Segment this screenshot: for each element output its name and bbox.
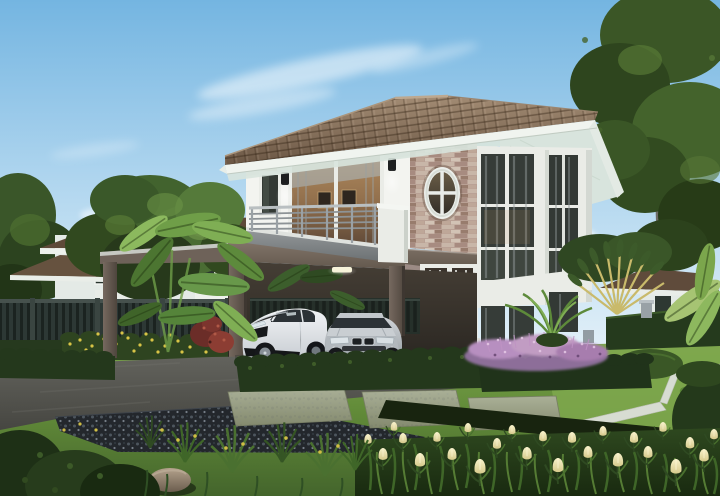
garden-pillar xyxy=(639,300,654,318)
carport-ceiling-light xyxy=(327,266,357,276)
car-grille xyxy=(352,338,362,345)
car-grille xyxy=(364,338,374,345)
windshield xyxy=(330,318,392,328)
balcony-parapet xyxy=(377,203,409,263)
side-mirror xyxy=(266,320,271,324)
headlight xyxy=(376,337,394,344)
carport-column xyxy=(103,262,117,358)
oval-window xyxy=(423,166,461,220)
headlight xyxy=(330,337,349,344)
house-rendering xyxy=(0,0,720,496)
